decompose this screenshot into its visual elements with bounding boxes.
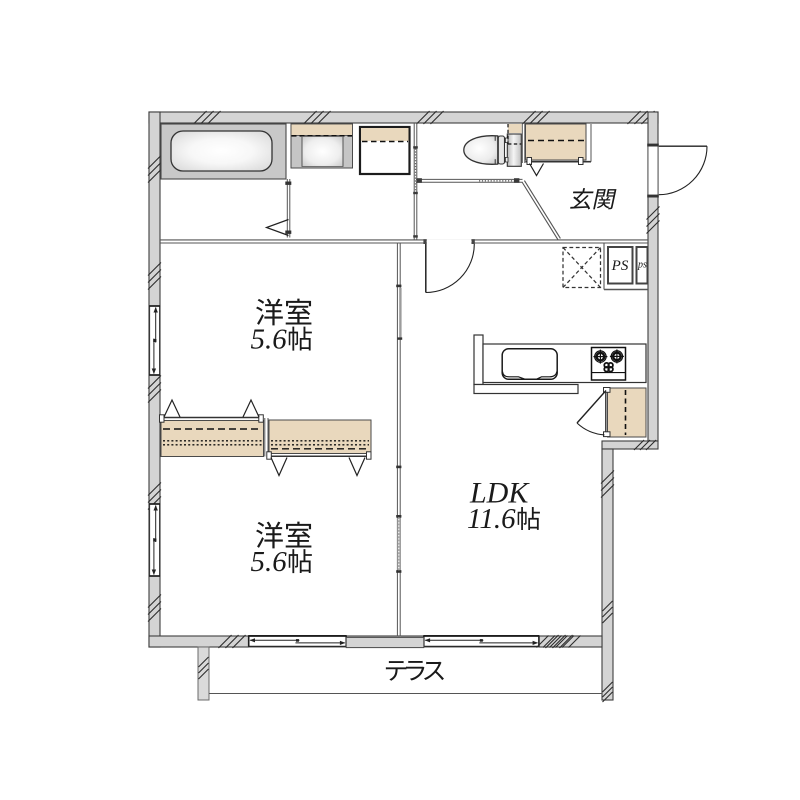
svg-text:PS: PS [611, 258, 629, 274]
svg-text:11.6: 11.6 [467, 503, 516, 535]
svg-text:ps: ps [637, 260, 647, 271]
svg-text:5.6: 5.6 [251, 546, 288, 578]
svg-text:5.6: 5.6 [251, 324, 288, 356]
